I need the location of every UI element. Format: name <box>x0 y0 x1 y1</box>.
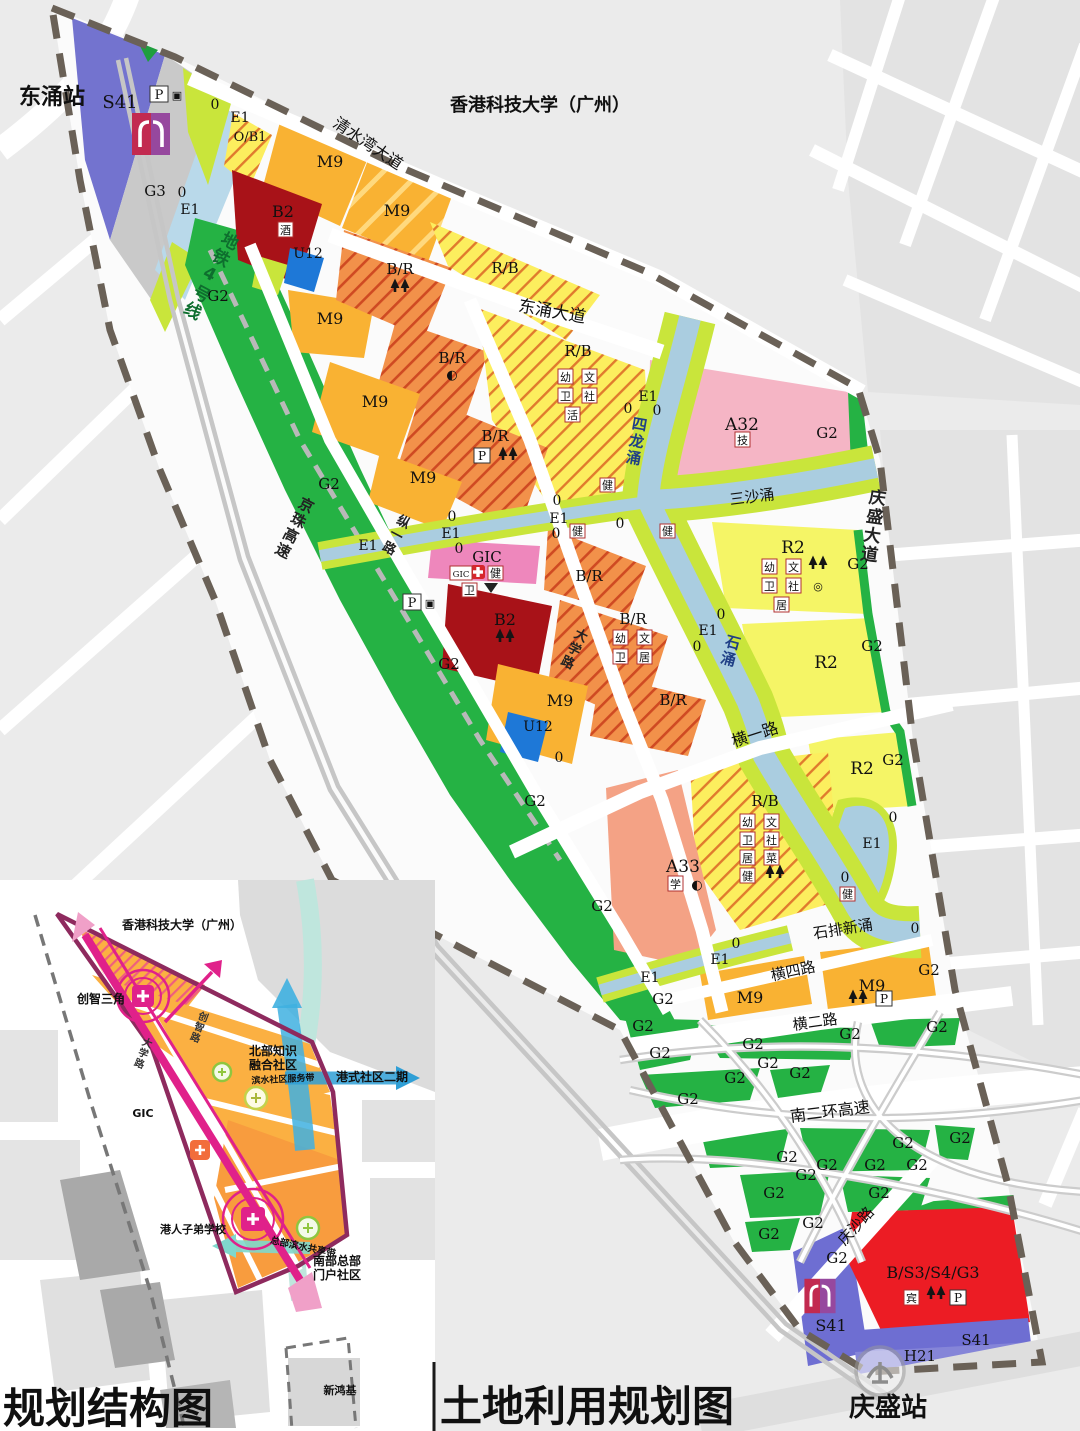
zone-label-br: B/R <box>619 610 647 628</box>
zone-label-a33: A33 <box>665 857 700 877</box>
zone-label-o: 0 <box>552 526 561 542</box>
zone-label-g2: G2 <box>918 961 940 979</box>
zone-label-o: 0 <box>455 541 464 557</box>
zone-label-ob1: O/B1 <box>234 130 267 145</box>
zone-label-r2: R2 <box>850 759 874 779</box>
badge-residence: 居 <box>776 599 787 612</box>
land-use-planning-map: P ▣ P ▣ P P P 幼 文 卫 社 活 幼 <box>0 0 1080 1431</box>
zone-label-s41: S41 <box>815 1316 846 1335</box>
badge-fitness: 健 <box>602 479 613 492</box>
badge-health: 卫 <box>742 834 753 847</box>
zone-label-o: 0 <box>717 607 726 623</box>
badge-culture: 文 <box>584 370 595 384</box>
railway-station-icon <box>856 1347 904 1395</box>
badge-moon-icon: ◐ <box>446 368 457 383</box>
inset-label-north-knowledge: 融合社区 <box>249 1057 297 1072</box>
badge-health: 卫 <box>764 580 775 593</box>
badge-school: 学 <box>670 877 681 891</box>
zone-label-g2: G2 <box>677 1090 699 1108</box>
inset-label-gic: GIC <box>132 1107 153 1120</box>
zone-label-br: B/R <box>386 260 414 278</box>
zone-label-o: 0 <box>693 639 702 655</box>
map-canvas: P ▣ P ▣ P P P 幼 文 卫 社 活 幼 <box>0 0 1080 1431</box>
zone-label-gic: GIC <box>472 548 501 566</box>
zone-label-g2: G2 <box>864 1156 886 1174</box>
inset-label-north-knowledge: 北部知识 <box>249 1043 297 1058</box>
zone-label-g2: G2 <box>438 655 460 673</box>
badge-fitness: 健 <box>662 525 673 538</box>
inset-label-south-gateway: 门户社区 <box>313 1267 361 1282</box>
zone-label-g2: G2 <box>816 1156 838 1174</box>
zone-label-r2: R2 <box>814 653 838 673</box>
title-land-use-map: 土地利用规划图 <box>440 1382 734 1431</box>
badge-technical: 技 <box>737 434 748 447</box>
zone-label-o: 0 <box>448 509 457 525</box>
zone-label-g2: G2 <box>724 1069 746 1087</box>
zone-label-g2: G2 <box>795 1166 817 1184</box>
badge-fitness: 健 <box>842 888 853 901</box>
inset-label-south-gateway: 南部总部 <box>313 1253 361 1268</box>
zone-label-m9: M9 <box>317 152 344 171</box>
hospital-cross-icon <box>471 565 485 579</box>
badge-residence: 居 <box>742 852 753 865</box>
zone-label-g2: G2 <box>524 792 546 810</box>
zone-label-g2: G2 <box>591 897 613 915</box>
zone-label-g2: G2 <box>763 1184 785 1202</box>
badge-fitness: 健 <box>742 870 753 883</box>
zone-label-e1: E1 <box>710 952 729 968</box>
badge-culture: 文 <box>639 631 650 645</box>
parking-letter: P <box>954 1291 962 1305</box>
badge-moon-icon: ◐ <box>691 878 702 893</box>
zone-label-o: 0 <box>889 810 898 826</box>
zone-label-s41: S41 <box>961 1331 990 1349</box>
inset-label-xinhongji: 新鸿基 <box>324 1383 358 1397</box>
zone-label-e1: E1 <box>638 389 657 405</box>
badge-hotel: 酒 <box>280 224 291 237</box>
zone-label-e1: E1 <box>358 538 377 554</box>
inset-structure-map: 香港科技大学（广州） 创智三角 北部知识 融合社区 港式社区二期 滨水社区服务带… <box>0 880 435 1431</box>
inset-label-hk-school: 港人子弟学校 <box>160 1222 227 1236</box>
zone-label-a32: A32 <box>724 415 759 435</box>
zone-label-e1: E1 <box>862 836 881 852</box>
badge-circle-icon: ◎ <box>813 580 823 593</box>
zone-label-g2: G2 <box>949 1129 971 1147</box>
zone-label-e1: E1 <box>441 526 460 542</box>
zone-label-b2: B2 <box>494 610 516 629</box>
inset-label-university: 香港科技大学（广州） <box>121 917 242 932</box>
badge-residence: 居 <box>639 651 650 664</box>
badge-gic: GIC <box>453 570 470 580</box>
badge-community: 社 <box>766 833 777 847</box>
parking-letter: P <box>478 449 486 463</box>
camera-icon: ▣ <box>172 89 182 102</box>
badge-fitness: 健 <box>490 567 501 580</box>
inset-label-innovation-triangle: 创智三角 <box>76 991 125 1006</box>
zone-label-g2: G2 <box>839 1025 861 1043</box>
badge-activity: 活 <box>567 409 578 422</box>
zone-label-br: B/R <box>481 427 509 445</box>
parking-icon: P ▣ <box>150 86 182 103</box>
zone-label-g2: G2 <box>906 1156 928 1174</box>
zone-label-m9: M9 <box>384 201 411 220</box>
zone-label-m9: M9 <box>859 976 886 995</box>
zone-label-br: B/R <box>438 349 466 367</box>
zone-label-s41: S41 <box>102 92 137 113</box>
zone-label-g2: G2 <box>882 751 904 769</box>
badge-kindergarten: 幼 <box>560 371 571 384</box>
title-structure-map: 规划结构图 <box>3 1384 213 1431</box>
zone-label-g2: G2 <box>868 1184 890 1202</box>
zone-label-o: 0 <box>841 870 850 886</box>
zone-label-g2: G2 <box>742 1035 764 1053</box>
badge-culture: 文 <box>766 815 777 829</box>
zone-label-e1: E1 <box>549 511 568 527</box>
metro-logo-icon <box>132 113 170 155</box>
camera-icon: ▣ <box>425 597 435 610</box>
metro-logo-icon <box>804 1279 835 1313</box>
zone-label-bs3s4g3: B/S3/S4/G3 <box>886 1263 979 1282</box>
zone-label-m9: M9 <box>410 468 437 487</box>
parking-icon: P ▣ <box>403 594 435 611</box>
inset-label-hk-community: 港式社区二期 <box>336 1069 408 1084</box>
zone-label-g2: G2 <box>776 1148 798 1166</box>
zone-label-o: 0 <box>732 936 741 952</box>
zone-label-g2: G2 <box>826 1249 848 1267</box>
zone-label-br: B/R <box>575 567 603 585</box>
zone-label-g3: G3 <box>144 182 166 200</box>
zone-label-g2: G2 <box>758 1225 780 1243</box>
zone-label-g2: G2 <box>926 1018 948 1036</box>
zone-label-g2: G2 <box>649 1044 671 1062</box>
zone-label-o: 0 <box>553 493 562 509</box>
zone-label-u12: U12 <box>523 719 553 735</box>
badge-community: 社 <box>584 389 595 403</box>
station-label-qingsheng: 庆盛站 <box>849 1392 927 1423</box>
zone-label-rb: R/B <box>564 342 591 360</box>
zone-label-o: 0 <box>616 516 625 532</box>
zone-label-e1: E1 <box>230 110 249 126</box>
station-label-dongchong: 东涌站 <box>19 84 85 110</box>
parking-letter: P <box>155 88 164 103</box>
zone-label-g2: G2 <box>802 1214 824 1232</box>
zone-label-o: 0 <box>211 97 220 113</box>
zone-label-rb: R/B <box>751 792 778 810</box>
badge-market: 菜 <box>766 852 777 865</box>
zone-label-g2: G2 <box>652 990 674 1008</box>
zone-label-o: 0 <box>178 185 187 201</box>
badge-health: 卫 <box>464 584 475 597</box>
zone-label-m9: M9 <box>737 988 764 1007</box>
badge-community: 社 <box>788 579 799 593</box>
zone-label-m9: M9 <box>547 691 574 710</box>
zone-label-g2: G2 <box>816 424 838 442</box>
zone-label-g2: G2 <box>757 1054 779 1072</box>
zone-label-o: 0 <box>653 403 662 419</box>
badge-health: 卫 <box>615 651 626 664</box>
zone-label-g2: G2 <box>861 637 883 655</box>
zone-label-rb: R/B <box>491 259 518 277</box>
zone-label-g2: G2 <box>632 1017 654 1035</box>
zone-label-e1: E1 <box>698 623 717 639</box>
zone-label-g2: G2 <box>318 475 340 493</box>
zone-label-g2: G2 <box>892 1134 914 1152</box>
zone-label-br: B/R <box>659 691 687 709</box>
zone-label-b2: B2 <box>272 202 294 221</box>
badge-health: 卫 <box>560 390 571 403</box>
badge-kindergarten: 幼 <box>742 816 753 829</box>
badge-fitness: 健 <box>572 525 583 538</box>
zone-label-h21: H21 <box>904 1347 936 1365</box>
zone-label-g2: G2 <box>789 1064 811 1082</box>
zone-label-e1: E1 <box>640 970 659 986</box>
zone-label-r2: R2 <box>781 538 805 558</box>
landmark-label-university: 香港科技大学（广州） <box>449 94 630 116</box>
badge-culture: 文 <box>788 560 799 574</box>
zone-label-u12: U12 <box>293 246 323 262</box>
zone-label-m9: M9 <box>317 309 344 328</box>
badge-kindergarten: 幼 <box>764 561 775 574</box>
parking-letter: P <box>408 596 417 611</box>
zone-label-e1: E1 <box>180 202 199 218</box>
zone-label-o: 0 <box>555 750 564 766</box>
badge-kindergarten: 幼 <box>615 632 626 645</box>
badge-hotel-guest: 宾 <box>906 1291 917 1305</box>
zone-label-m9: M9 <box>362 392 389 411</box>
zone-label-o: 0 <box>911 921 920 937</box>
